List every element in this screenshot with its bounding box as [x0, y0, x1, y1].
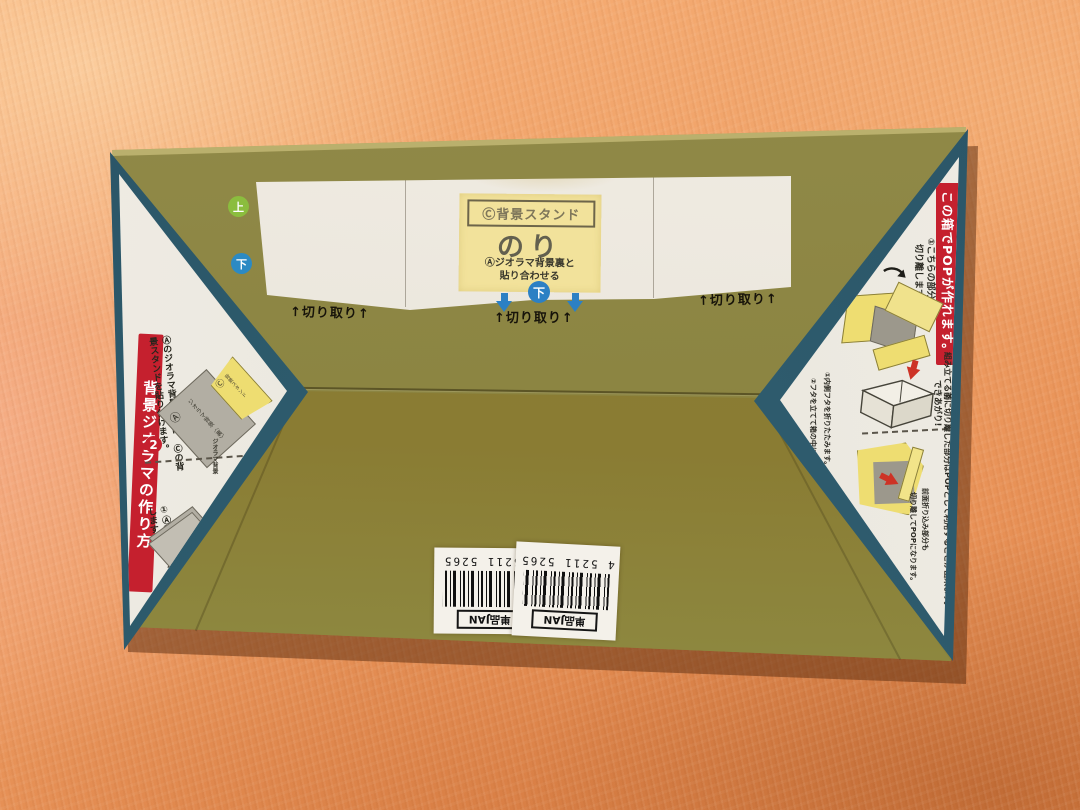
right-caption1: ①内側フタを折りたたみます。: [822, 372, 832, 468]
barcode-digits: 4 5211 5265: [515, 553, 620, 571]
cut-here-label-left: ↑切り取り↑: [290, 301, 370, 322]
glue-note-line2: 貼り合わせる: [459, 270, 601, 283]
up-badge: 上: [228, 196, 249, 217]
cut-here-label-center: ↑切り取り↑: [494, 307, 574, 326]
front-note-line2: 切り離してPOPになります。: [908, 492, 918, 584]
barcode-bars: [522, 570, 610, 610]
glue-area-header-box: Ⓒ背景スタンド: [467, 199, 595, 227]
diagram-c-caption: 背景スタンド: [223, 372, 248, 399]
photo-of-box-back: 上 下 Ⓒ背景スタンド のり Ⓐジオラマ背景裏と 貼り合わせる 下 ↑切り取り↑…: [0, 0, 1080, 810]
glue-area: Ⓒ背景スタンド のり Ⓐジオラマ背景裏と 貼り合わせる: [458, 193, 601, 292]
up-badge-label: 上: [233, 199, 244, 215]
panel-fold-line-right: [653, 177, 654, 298]
down-badge: 下: [231, 253, 252, 274]
assembled-box-diagram: [853, 368, 939, 436]
down-center-label: 下: [533, 284, 545, 301]
barcode-label-box: 単品JAN: [531, 609, 598, 631]
panel-fold-line-left: [405, 178, 406, 307]
down-badge-label: 下: [236, 256, 247, 272]
glue-note-line1: Ⓐジオラマ背景裏と: [459, 257, 601, 270]
glue-area-header: Ⓒ背景スタンド: [482, 203, 580, 223]
barcode-sticker-right: 単品JAN 4 5211 5265: [512, 541, 621, 640]
left-step2-number: 2: [145, 436, 162, 453]
front-note-line1: 前面折り込み部分も: [920, 488, 930, 551]
down-center-badge: 下: [528, 281, 550, 303]
diagram-a-label: Ⓐ: [166, 408, 185, 427]
cut-here-label-right: ↑切り取り↑: [698, 288, 778, 309]
page-diagram-caption: ジオラマ背景: [210, 438, 219, 478]
diagram-a-caption: ジオラマ背景〈裏〉: [185, 397, 228, 443]
pop-display-diagram: [847, 431, 950, 532]
